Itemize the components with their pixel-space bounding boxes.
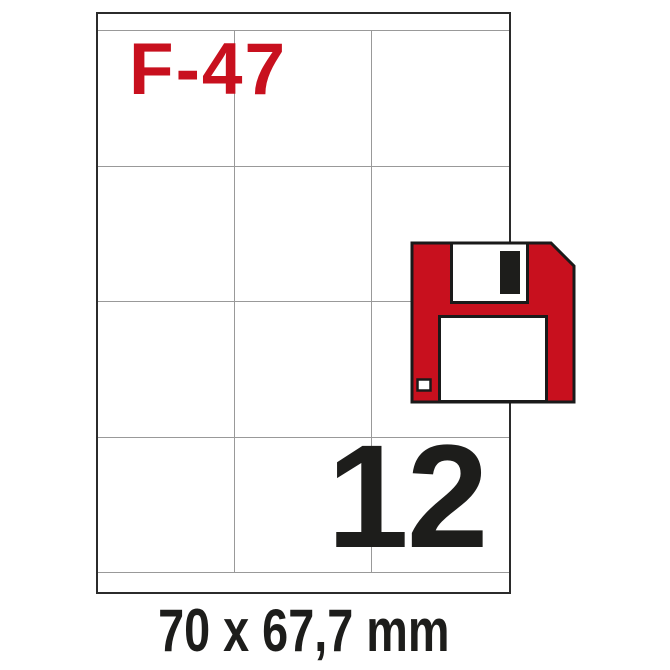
label-cell — [98, 438, 235, 574]
label-cell — [98, 302, 235, 438]
label-cell — [235, 167, 372, 303]
product-code: F-47 — [129, 33, 287, 106]
label-dimensions: 70 x 67,7 mm — [96, 601, 511, 661]
labels-per-sheet-count: 12 — [327, 424, 487, 571]
label-cell — [372, 31, 509, 167]
label-dimensions-text: 70 x 67,7 mm — [158, 601, 449, 661]
floppy-disk-icon — [410, 241, 576, 404]
product-image: F-47 12 70 x 67,7 mm — [0, 0, 670, 670]
label-cell — [98, 167, 235, 303]
